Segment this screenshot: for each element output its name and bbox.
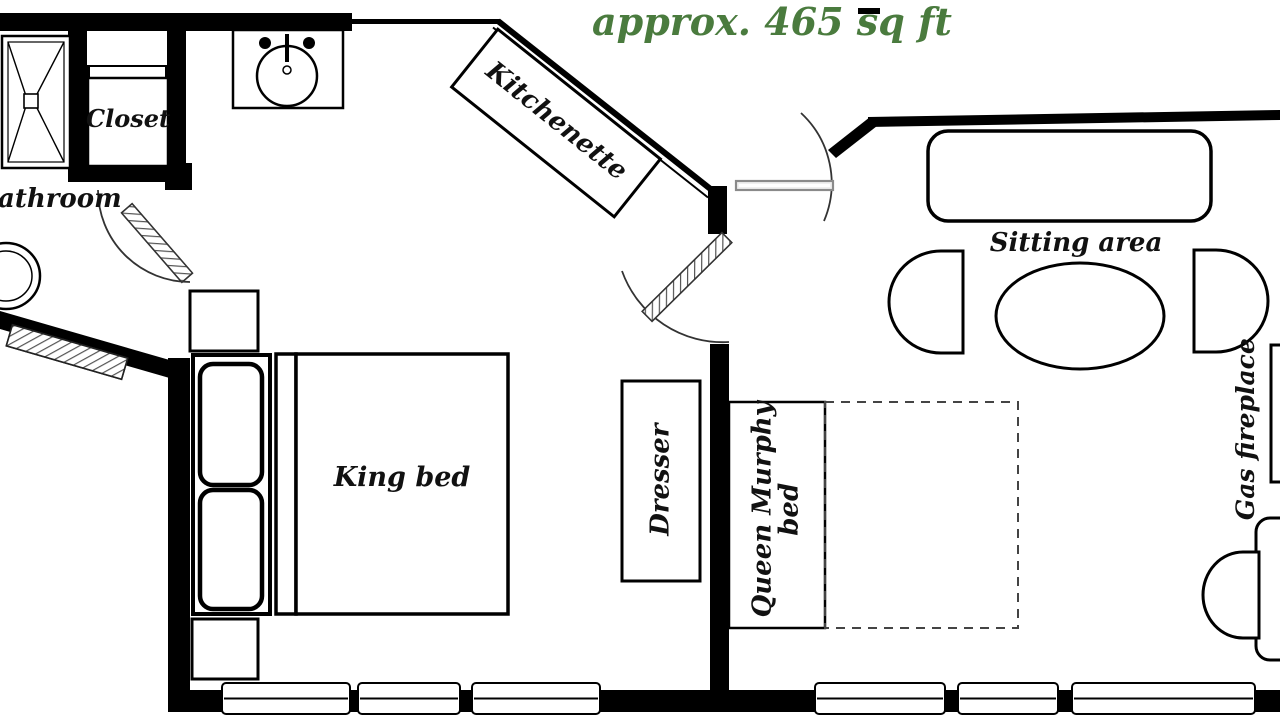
floor-plan-drawing [0,0,1280,720]
nightstand-top [190,291,258,351]
window [358,683,460,714]
chair-left [889,251,963,353]
desk-chair [1203,552,1259,638]
faucet-drain [283,66,291,74]
furniture-label-dresser: Dresser [647,380,674,580]
faucet-handle-right [303,37,315,49]
oval-table [996,263,1164,369]
shower-drain [24,94,38,108]
furniture-label-king-bed: King bed [302,464,502,492]
furniture-label-gas-fireplace: Gas fireplace [1233,319,1259,539]
wall-middle [710,344,729,692]
gas-fireplace-outline [1271,345,1280,482]
window [222,683,350,714]
bedroom-door [622,233,732,342]
bedroom-door-leaf [642,233,732,322]
sofa [928,131,1211,221]
furniture-label-queen-murphy-bed: Queen Murphy bed [750,389,805,629]
wall-top-left [0,13,352,31]
wall-bedroom-left [168,358,190,712]
window [958,683,1058,714]
shower [2,36,70,168]
window [1072,683,1255,714]
window [815,683,945,714]
wall-top-right [868,110,1280,127]
closet-structure [86,30,168,166]
window [472,683,600,714]
entry-door-arc [801,113,832,221]
wall-middle-post [708,186,727,234]
closet-door-panel [86,30,168,66]
murphy-label-line1: Queen Murphy [750,389,777,629]
room-label-closet: Closet [86,106,170,131]
nightstand-bottom [192,619,258,679]
area-note: approx. 465 sq ft [592,2,922,42]
entry-door [736,113,833,221]
murphy-bed-folded-outline [825,402,1018,628]
king-bed-pillow-top [200,364,262,485]
wall-top-thin [350,19,500,24]
king-bed-pillow-bottom [200,490,262,609]
murphy-label-line2: bed [777,389,804,629]
room-label-sitting-area: Sitting area [976,230,1176,257]
king-bed-board [276,354,296,614]
faucet-handle-left [259,37,271,49]
bathroom-door-leaf [122,204,193,283]
faucet-spout [285,34,289,62]
floor-plan: approx. 465 sq ft Bathroom Closet Kitche… [0,0,1280,720]
sink-vanity [233,30,343,108]
toilet [0,243,40,309]
room-label-bathroom: Bathroom [0,186,122,213]
